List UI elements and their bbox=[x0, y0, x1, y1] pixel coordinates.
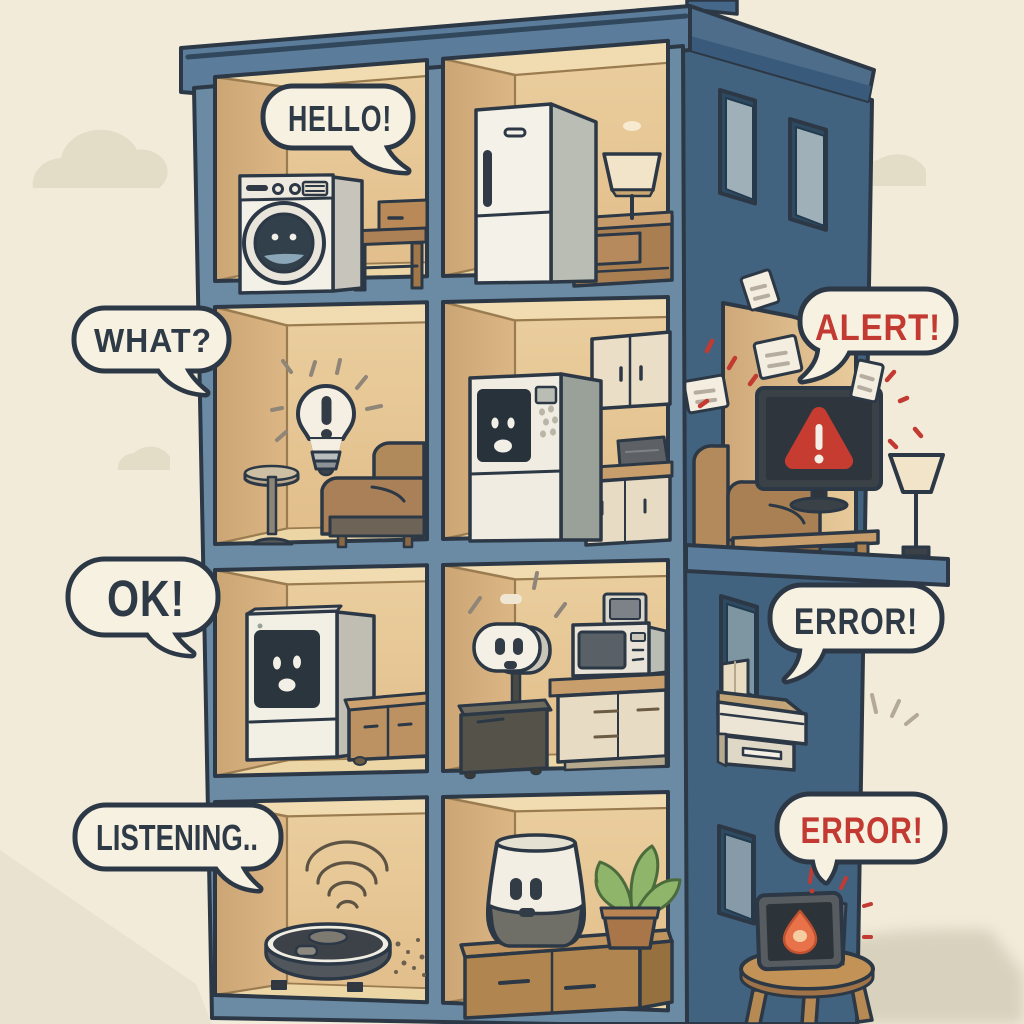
svg-text:ALERT!: ALERT! bbox=[815, 307, 941, 348]
svg-text:LISTENING..: LISTENING.. bbox=[96, 817, 258, 858]
svg-text:WHAT?: WHAT? bbox=[94, 322, 212, 359]
svg-text:HELLO!: HELLO! bbox=[288, 98, 392, 139]
svg-text:ERROR!: ERROR! bbox=[794, 601, 918, 642]
svg-text:OK!: OK! bbox=[107, 570, 185, 627]
svg-text:ERROR!: ERROR! bbox=[801, 810, 924, 851]
